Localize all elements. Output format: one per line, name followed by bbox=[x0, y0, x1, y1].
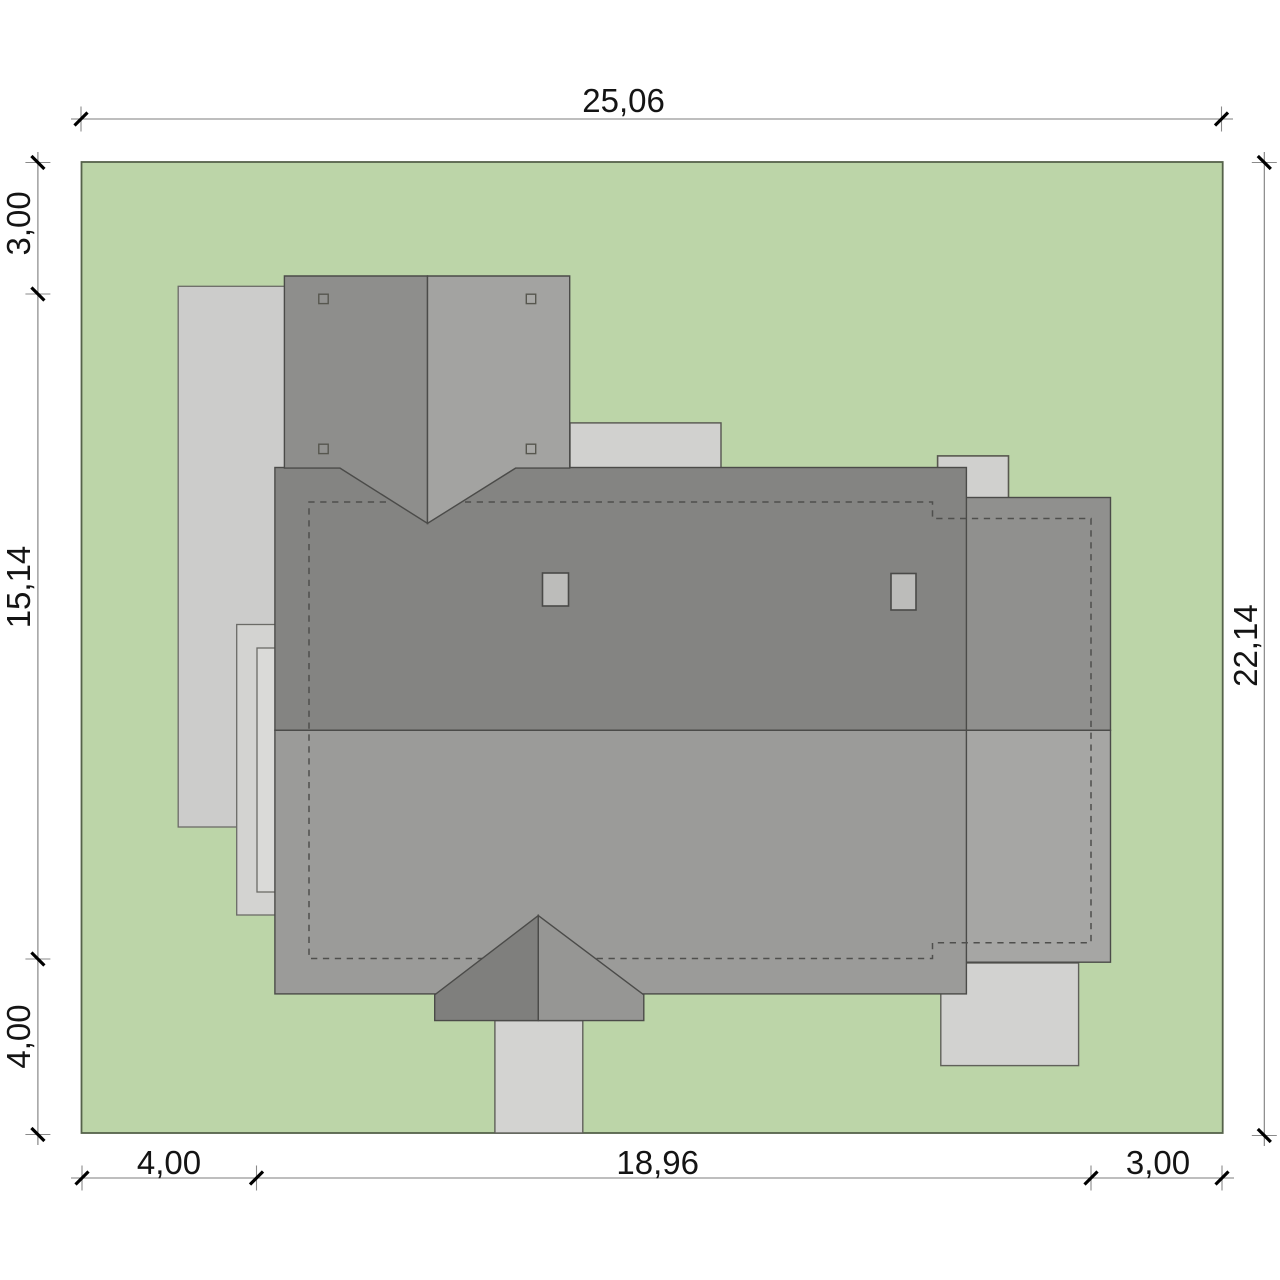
svg-text:18,96: 18,96 bbox=[616, 1144, 699, 1181]
svg-text:3,00: 3,00 bbox=[1126, 1144, 1190, 1181]
svg-text:15,14: 15,14 bbox=[0, 546, 37, 629]
svg-text:4,00: 4,00 bbox=[137, 1144, 201, 1181]
svg-text:3,00: 3,00 bbox=[0, 191, 37, 255]
svg-text:25,06: 25,06 bbox=[582, 82, 665, 119]
svg-text:4,00: 4,00 bbox=[0, 1004, 37, 1068]
svg-text:22,14: 22,14 bbox=[1227, 604, 1264, 687]
